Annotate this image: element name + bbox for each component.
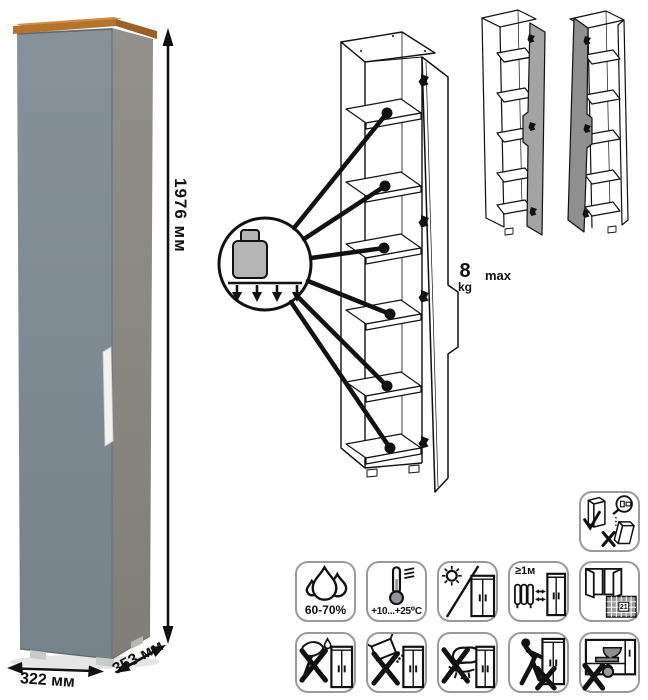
humidity-icon: 60-70%	[295, 561, 356, 622]
person-icon	[521, 638, 542, 683]
radiator-icon	[515, 585, 533, 609]
product-sheet: 1976 мм 322 мм 353 мм	[0, 0, 648, 700]
load-unit: kg	[448, 281, 482, 293]
heater-distance-icon: ≥1м	[508, 561, 569, 622]
ventilation-calendar-icon: 21	[579, 561, 640, 622]
door-variants-drawing	[478, 6, 646, 250]
temperature-range-icon: +10...+25⁰C	[366, 561, 427, 622]
variant-door-left	[568, 11, 628, 233]
sun-icon	[442, 566, 462, 586]
wall-mount-anti-tip-icon	[579, 491, 640, 552]
wardrobe-icon	[403, 647, 423, 687]
calendar-day: 21	[620, 604, 628, 611]
width-dimension-label: 322 мм	[19, 670, 75, 692]
variant-door-right	[482, 10, 545, 235]
temperature-label: +10...+25⁰C	[368, 606, 425, 617]
no-wet-sponge-icon	[437, 632, 498, 693]
cabinet-door-face	[17, 28, 112, 659]
open-windows-icon	[586, 569, 621, 598]
shelf-callout-dots	[379, 108, 396, 454]
wardrobe-icon	[331, 647, 352, 687]
wardrobe-icon	[476, 647, 494, 687]
height-dimension-arrow	[163, 28, 174, 644]
height-dimension-label: 1976 мм	[170, 178, 190, 253]
distance-label: ≥1м	[515, 565, 535, 577]
foot	[409, 465, 419, 473]
foot	[367, 469, 377, 477]
x-mark	[603, 533, 614, 546]
cabinet-side-panel	[112, 28, 153, 659]
x-mark	[374, 654, 398, 683]
wardrobe-icon	[471, 576, 494, 616]
cabinet-render	[0, 0, 210, 700]
distance-arrows	[535, 589, 546, 601]
wardrobe-icon	[547, 574, 565, 615]
anti-tip-graphic	[581, 493, 638, 550]
shelf-load-diagram: 8 kg max	[215, 20, 505, 505]
humidity-label: 60-70%	[297, 603, 354, 617]
product-photo: 1976 мм 322 мм 353 мм	[0, 0, 210, 700]
door-variant-diagrams	[478, 6, 646, 250]
no-heavy-items-icon	[579, 632, 640, 693]
door-handle	[103, 347, 113, 446]
no-direct-sunlight-icon	[437, 561, 498, 622]
no-sharp-tools-icon	[295, 632, 356, 693]
load-value: 8	[448, 261, 482, 281]
no-abrasive-powder-icon	[366, 632, 427, 693]
no-dragging-icon	[508, 632, 569, 693]
calendar-icon: 21	[607, 596, 636, 617]
load-max-qualifier: max	[485, 268, 511, 283]
